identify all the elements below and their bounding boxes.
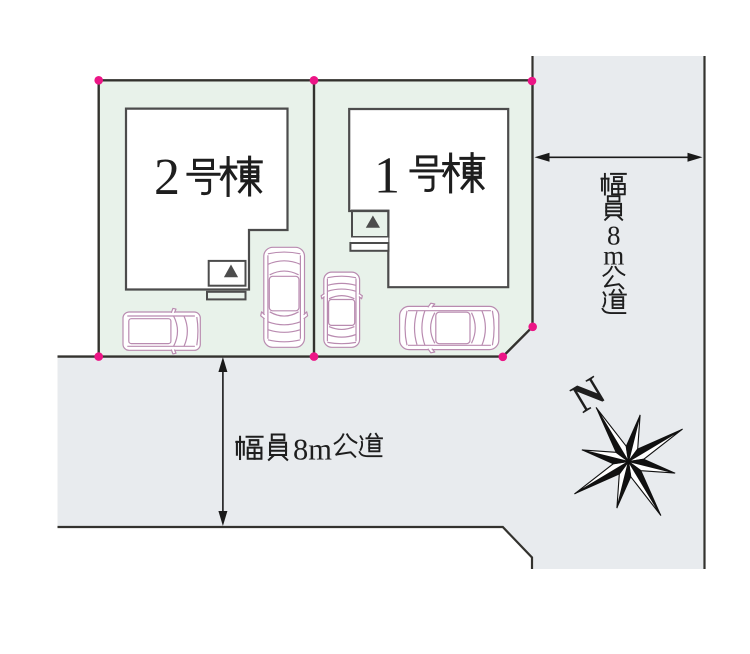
svg-text:m: m (603, 241, 624, 271)
svg-text:1: 1 (374, 148, 400, 205)
svg-text:8m: 8m (293, 433, 332, 467)
svg-text:2: 2 (154, 149, 180, 206)
